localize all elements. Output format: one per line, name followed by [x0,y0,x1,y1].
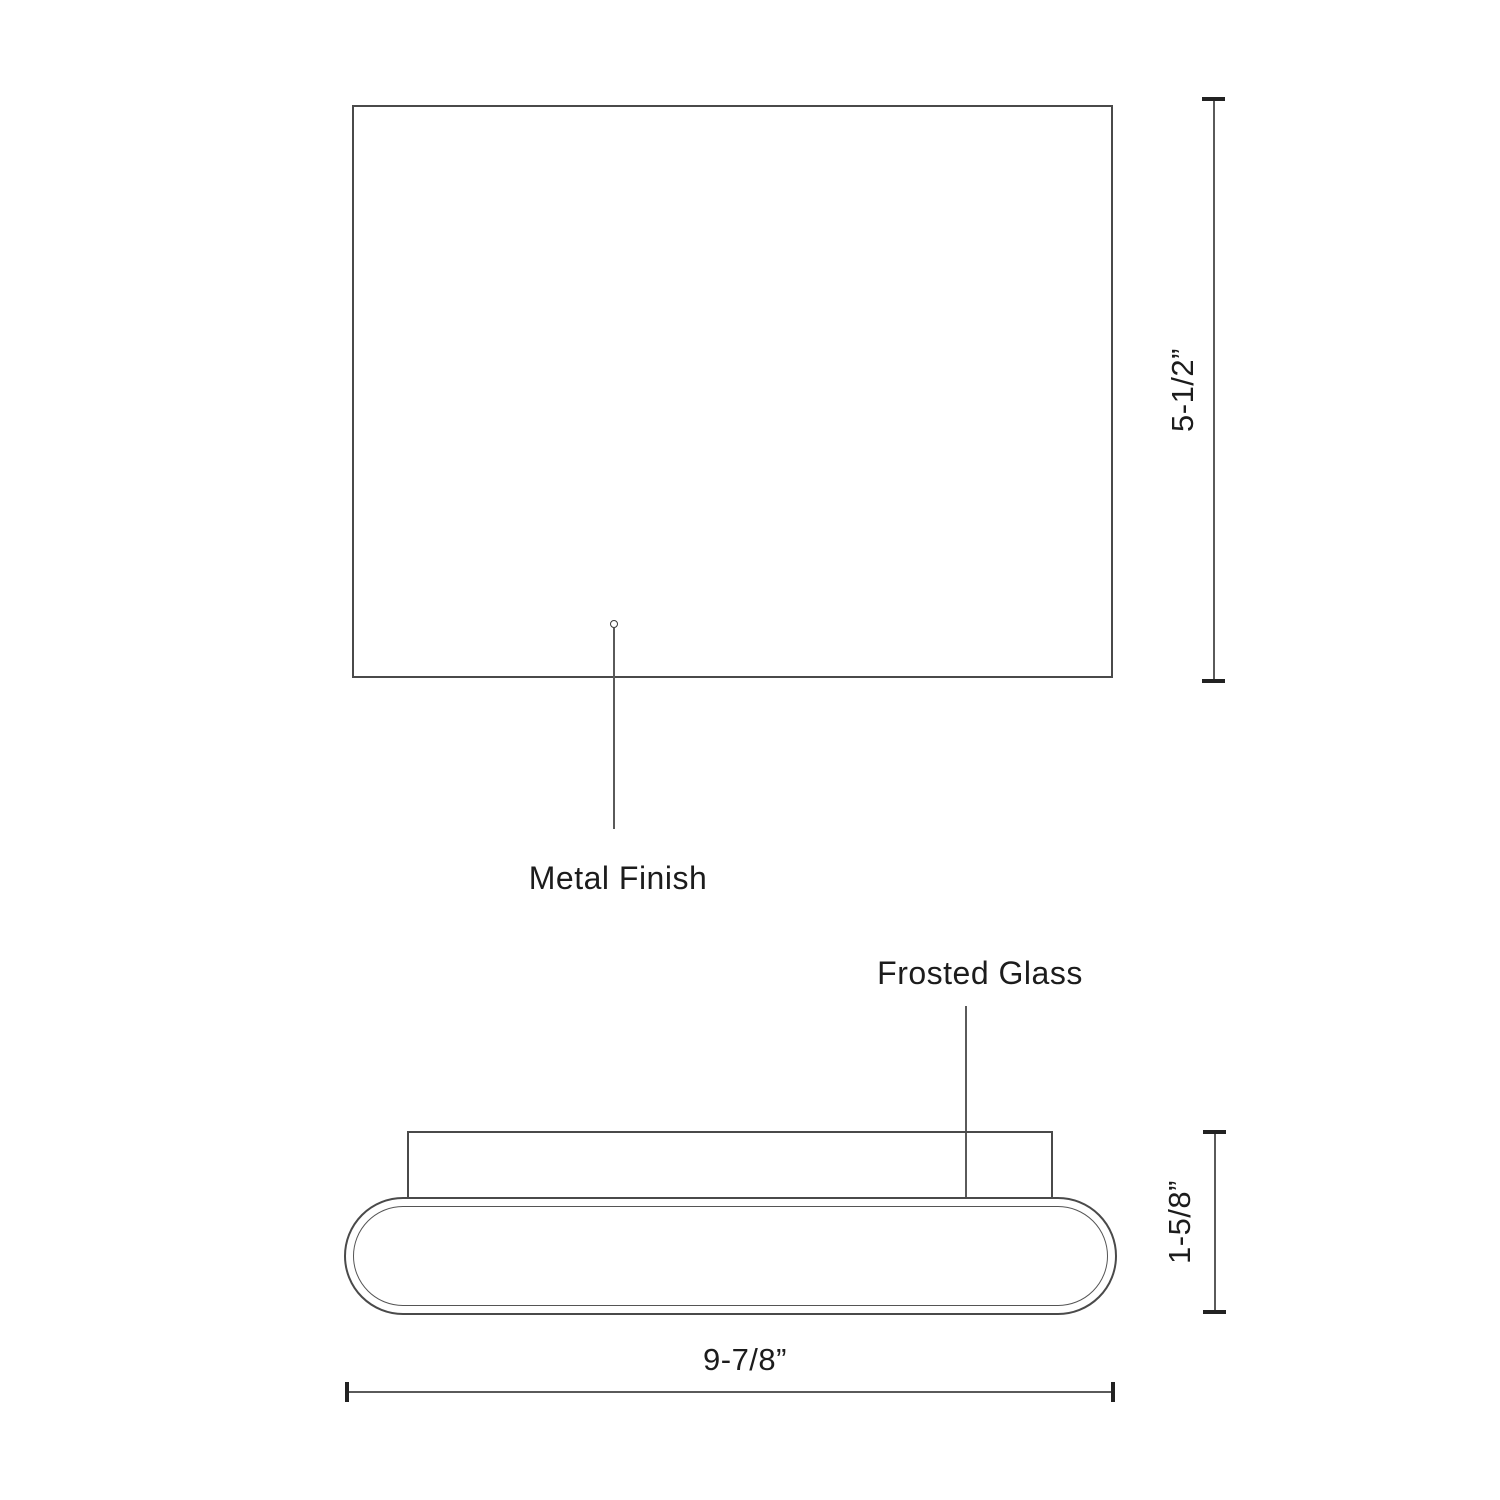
side-width-dimension-left-tick [345,1382,349,1402]
metal-finish-leader-dot [610,620,618,628]
side-view-glass-inner-outline [353,1206,1108,1306]
front-height-dimension-bottom-tick [1202,679,1225,683]
side-width-dimension-label: 9-7/8” [645,1342,845,1378]
frosted-glass-label: Frosted Glass [860,956,1100,990]
front-height-dimension-line [1213,99,1215,681]
side-height-dimension-top-tick [1203,1130,1226,1134]
front-view-outline [352,105,1113,678]
metal-finish-label: Metal Finish [508,861,728,895]
side-height-dimension-label: 1-5/8” [1162,1152,1198,1292]
side-width-dimension-right-tick [1111,1382,1115,1402]
side-height-dimension-line [1214,1132,1216,1312]
front-height-dimension-top-tick [1202,97,1225,101]
side-height-dimension-bottom-tick [1203,1310,1226,1314]
side-view-mounting-plate-outline [407,1131,1053,1197]
technical-drawing-canvas: Metal Finish 5-1/2” Frosted Glass 1-5/8”… [0,0,1500,1500]
front-height-dimension-label: 5-1/2” [1165,320,1201,460]
side-width-dimension-line [347,1391,1113,1393]
metal-finish-leader-line [613,628,615,829]
